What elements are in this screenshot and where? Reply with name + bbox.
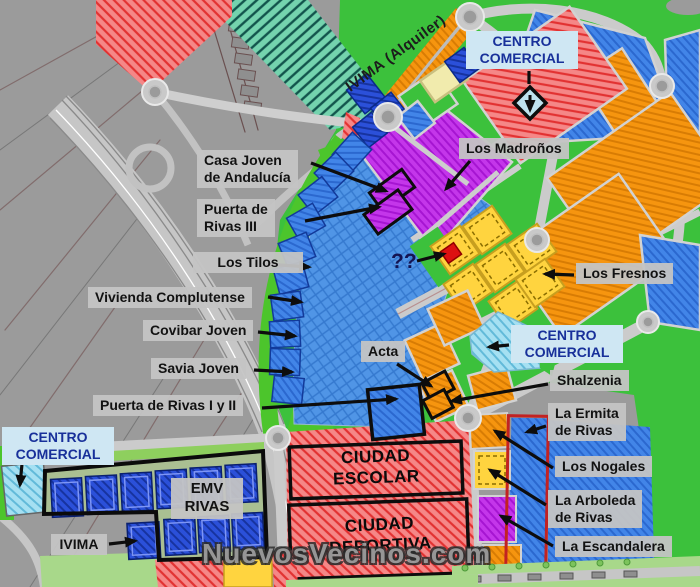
label-casa-joven: Casa Joven de Andalucía: [197, 150, 298, 188]
label-unknown-parcel: ??: [391, 249, 417, 275]
label-acta: Acta: [361, 341, 405, 362]
watermark: NuevosVecinos.com: [202, 538, 491, 570]
label-centro-comercial-middle: CENTRO COMERCIAL: [511, 325, 623, 363]
label-ciudad-escolar: CIUDAD ESCOLAR: [296, 444, 455, 491]
label-la-arboleda: La Arboleda de Rivas: [548, 490, 642, 528]
label-puerta-rivas-3: Puerta de Rivas III: [197, 199, 275, 237]
label-la-ermita: La Ermita de Rivas: [548, 403, 626, 441]
label-los-fresnos: Los Fresnos: [576, 263, 673, 284]
label-puerta-rivas-1-2: Puerta de Rivas I y II: [93, 395, 243, 416]
label-los-madronos: Los Madroños: [459, 138, 569, 159]
commercial-parcel-sw: [2, 462, 49, 516]
map-screenshot: Casa Joven de Andalucía Puerta de Rivas …: [0, 0, 700, 587]
label-savia-joven: Savia Joven: [151, 358, 246, 379]
puerta-rivas-1-2-parcel: [368, 384, 425, 439]
label-centro-comercial-southwest: CENTRO COMERCIAL: [2, 427, 114, 465]
label-la-escandalera: La Escandalera: [555, 536, 672, 557]
label-emv-rivas: EMV RIVAS: [171, 478, 243, 519]
label-covibar-joven: Covibar Joven: [143, 320, 253, 341]
label-los-tilos: Los Tilos: [193, 252, 303, 273]
label-vivienda-complutense: Vivienda Complutense: [88, 287, 252, 308]
label-los-nogales: Los Nogales: [555, 456, 652, 477]
label-shalzenia: Shalzenia: [550, 370, 629, 391]
label-ivima: IVIMA: [51, 534, 107, 555]
label-centro-comercial-north: CENTRO COMERCIAL: [466, 31, 578, 69]
